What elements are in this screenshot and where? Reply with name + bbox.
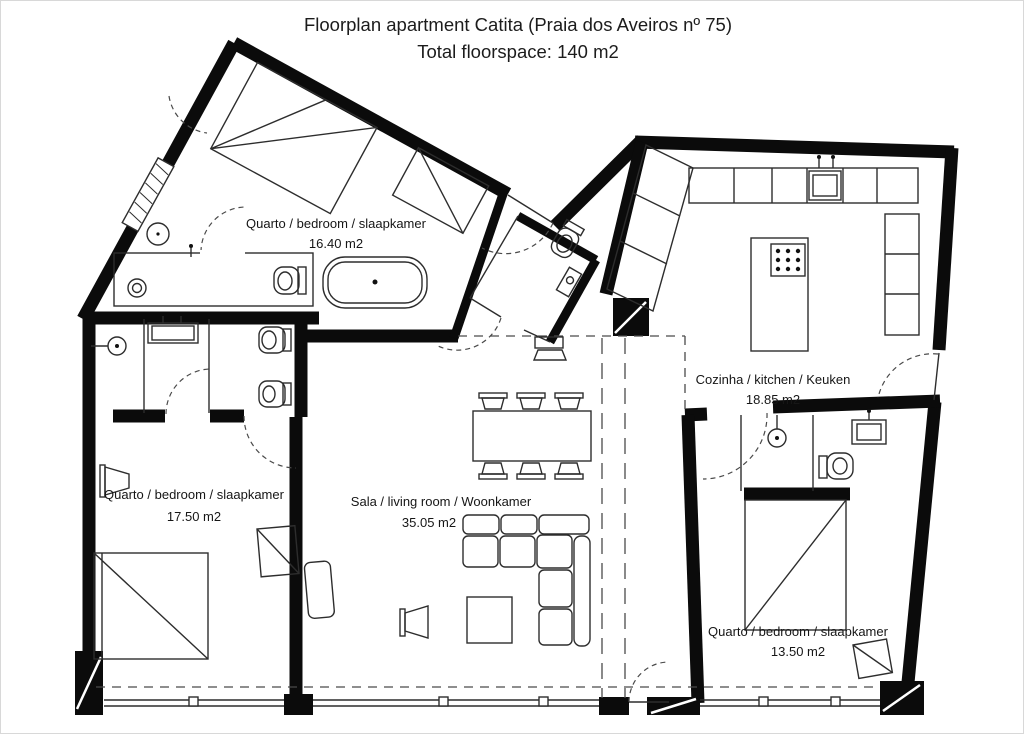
page-title: Floorplan apartment Catita (Praia dos Av… bbox=[304, 14, 732, 35]
mullion bbox=[189, 697, 198, 706]
top-bath-door-arc bbox=[201, 207, 246, 252]
area-bedroom-left: 17.50 m2 bbox=[167, 509, 221, 524]
coffee-table bbox=[467, 597, 512, 643]
balcony-door-leaf bbox=[934, 353, 939, 400]
interior-walls bbox=[86, 142, 940, 703]
kitchen-counter-top bbox=[689, 168, 918, 203]
tv-icon bbox=[400, 606, 428, 638]
dining-chairs bbox=[479, 393, 583, 479]
kitchen-island bbox=[751, 238, 808, 351]
toilet-icon bbox=[827, 453, 853, 479]
vanity-counter bbox=[114, 253, 313, 306]
area-living-room: 35.05 m2 bbox=[402, 515, 456, 530]
mullion bbox=[831, 697, 840, 706]
mullion bbox=[759, 697, 768, 706]
area-kitchen: 18.85 m2 bbox=[746, 392, 800, 407]
bedroom-top-side-table bbox=[147, 223, 169, 245]
kitchen-balcony-door-arc bbox=[878, 354, 938, 398]
dining-table bbox=[473, 411, 591, 461]
toilet-tank bbox=[819, 456, 827, 478]
room-labels: Quarto / bedroom / slaapkamer 16.40 m2 C… bbox=[104, 216, 889, 659]
left-bedroom-door-arc bbox=[244, 416, 296, 468]
terrace-door-arc bbox=[629, 662, 669, 702]
living-room-furniture bbox=[304, 337, 591, 646]
sink-icon bbox=[128, 279, 146, 297]
louver-window bbox=[122, 158, 174, 231]
kitchen-furniture bbox=[607, 145, 919, 351]
mullion bbox=[439, 697, 448, 706]
armchair bbox=[304, 561, 335, 619]
titles: Floorplan apartment Catita (Praia dos Av… bbox=[304, 14, 732, 62]
nightstand bbox=[853, 639, 892, 678]
mullion bbox=[539, 697, 548, 706]
area-bedroom-top: 16.40 m2 bbox=[309, 236, 363, 251]
bathroom-left bbox=[91, 316, 291, 407]
label-bedroom-top: Quarto / bedroom / slaapkamer bbox=[246, 216, 427, 231]
page-subtitle: Total floorspace: 140 m2 bbox=[417, 41, 619, 62]
bathroom-top bbox=[114, 244, 427, 308]
left-bath-door-arc bbox=[166, 369, 211, 414]
label-bedroom-left: Quarto / bedroom / slaapkamer bbox=[104, 487, 285, 502]
label-kitchen: Cozinha / kitchen / Keuken bbox=[696, 372, 851, 387]
toilet-icon bbox=[259, 327, 285, 353]
label-bedroom-right: Quarto / bedroom / slaapkamer bbox=[708, 624, 889, 639]
kitchen-counter-right bbox=[885, 214, 919, 335]
outer-walls bbox=[83, 43, 954, 693]
right-bath-door-arc bbox=[703, 413, 767, 479]
label-living-room: Sala / living room / Woonkamer bbox=[351, 494, 532, 509]
hob-burners bbox=[776, 249, 800, 271]
window-wall bbox=[104, 697, 880, 706]
bathroom-right bbox=[768, 409, 886, 479]
floorplan-page: Floorplan apartment Catita (Praia dos Av… bbox=[0, 0, 1024, 734]
sofa bbox=[463, 515, 590, 646]
floorplan-svg: Floorplan apartment Catita (Praia dos Av… bbox=[1, 1, 1024, 734]
area-bedroom-right: 13.50 m2 bbox=[771, 644, 825, 659]
